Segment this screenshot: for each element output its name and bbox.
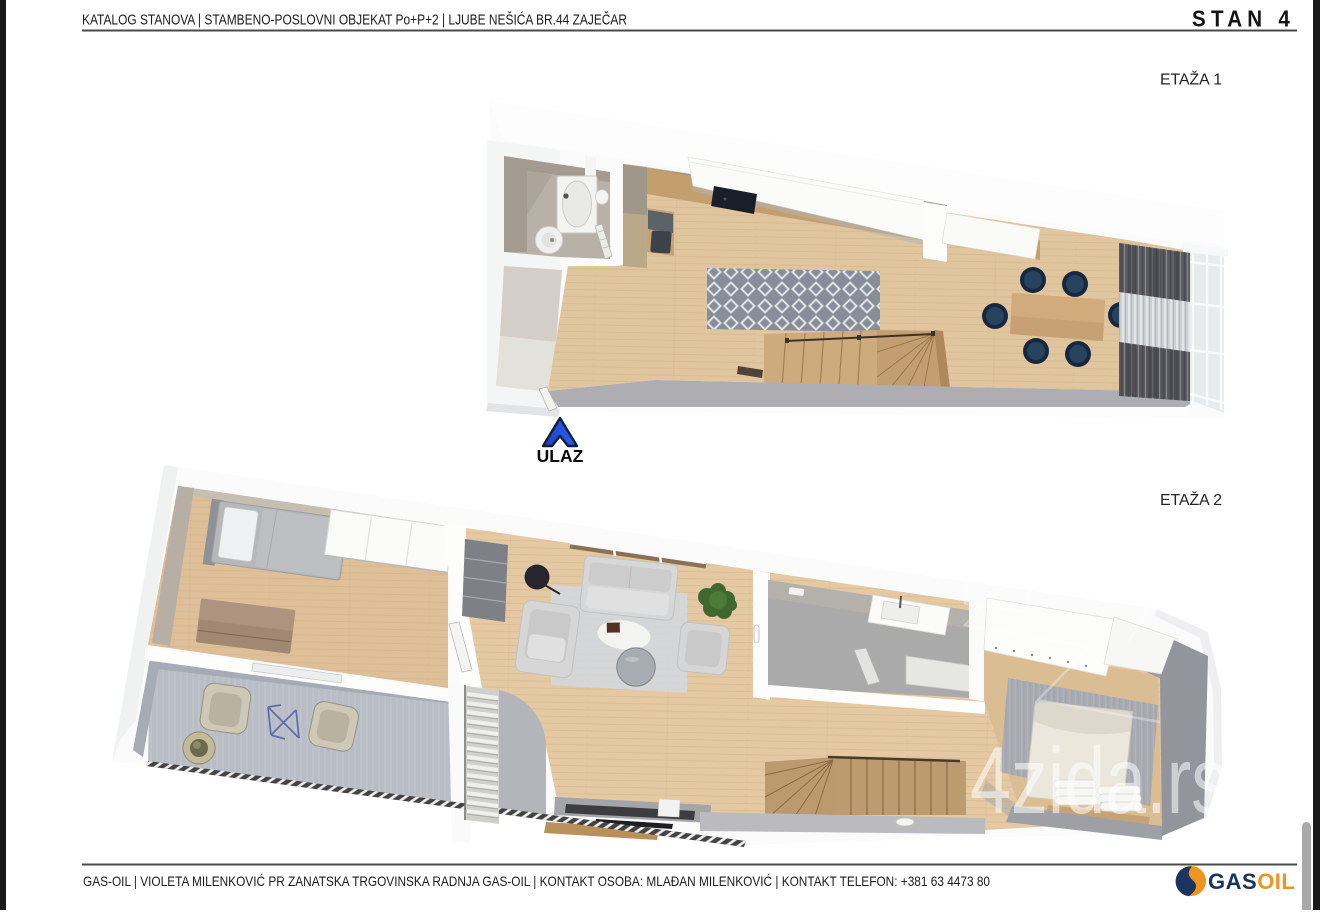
svg-text:ULAZ: ULAZ [537, 446, 584, 466]
svg-text:GAS-OIL | VIOLETA MILENKOVIĆ P: GAS-OIL | VIOLETA MILENKOVIĆ PR ZANATSKA… [83, 873, 990, 889]
svg-text:GASOIL: GASOIL [1208, 869, 1295, 894]
svg-text:ETAŽA 2: ETAŽA 2 [1160, 492, 1222, 509]
svg-text:KATALOG STANOVA | STAMBENO-POS: KATALOG STANOVA | STAMBENO-POSLOVNI OBJE… [82, 12, 627, 29]
svg-text:ETAŽA 1: ETAŽA 1 [1160, 72, 1222, 89]
svg-text:4zida.rs: 4zida.rs [970, 728, 1228, 834]
svg-text:STAN 4: STAN 4 [1192, 6, 1295, 32]
